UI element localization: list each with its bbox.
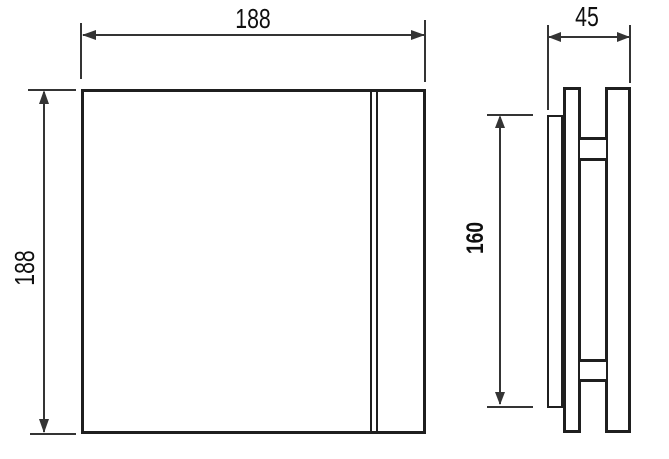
height-dim-tick-top: [28, 89, 76, 91]
side-view-front-panel: [547, 115, 563, 408]
width-dim-label: 188: [235, 5, 271, 33]
technical-drawing-canvas: 188 188 45 160: [0, 0, 669, 459]
panel-height-dim-arrow-up-icon: [495, 115, 505, 128]
side-view-bottom-connector: [580, 359, 606, 382]
height-dim-arrow-down-icon: [39, 419, 49, 433]
front-panel-groove-line-left: [370, 92, 372, 431]
height-dim-arrow-up-icon: [39, 90, 49, 104]
width-dim-line: [83, 34, 425, 36]
front-view-outline: [81, 89, 426, 434]
width-dim-arrow-left-icon: [82, 30, 96, 40]
side-view-middle-section: [563, 87, 581, 433]
depth-dim-arrow-left-icon: [548, 32, 561, 42]
height-dim-line: [43, 92, 45, 432]
panel-height-dim-arrow-down-icon: [495, 392, 505, 405]
height-dim-tick-bottom: [30, 433, 76, 435]
side-view-rear-section: [605, 87, 631, 433]
front-panel-groove-line-right: [376, 92, 378, 431]
depth-dim-arrow-right-icon: [617, 32, 630, 42]
panel-height-dim-label: 160: [464, 222, 488, 254]
panel-height-dim-line: [499, 117, 501, 404]
width-dim-arrow-right-icon: [411, 30, 425, 40]
side-view-top-connector: [580, 137, 606, 161]
panel-height-dim-tick-bottom: [487, 406, 533, 408]
panel-height-dim-tick-top: [487, 114, 533, 116]
depth-dim-label: 45: [575, 3, 599, 31]
height-dim-label: 188: [11, 250, 39, 286]
